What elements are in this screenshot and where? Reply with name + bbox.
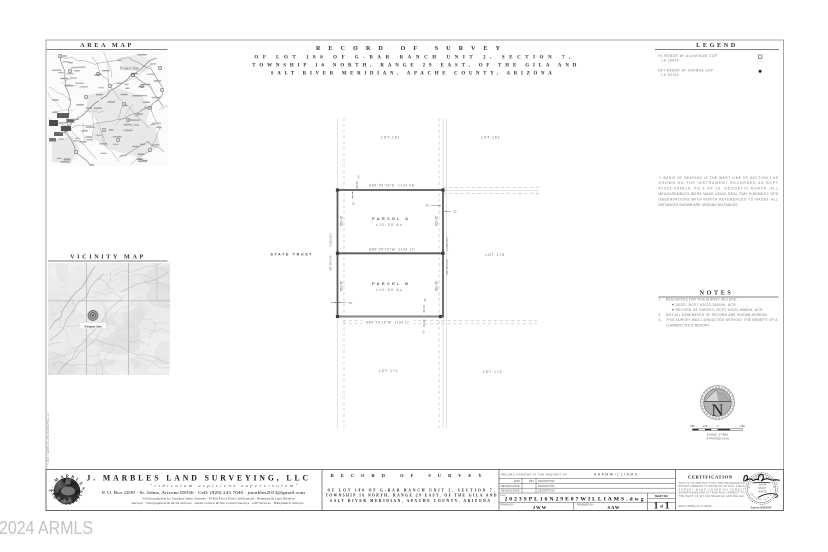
svg-text:LEGEND: LEGEND <box>696 42 738 49</box>
svg-text:RESOURCES FOR THIS SURVEY INCL: RESOURCES FOR THIS SURVEY INCLUDE: <box>666 298 737 302</box>
svg-text:DATE: DATE <box>514 480 521 483</box>
svg-text:LS 19049: LS 19049 <box>662 58 679 62</box>
svg-text:661.46': 661.46' <box>340 215 344 226</box>
svg-text:"ridiculum aspiciens superviso: "ridiculum aspiciens supervisorem" <box>150 483 300 488</box>
svg-text:OBSERVATIONS WITH NORTH REFERE: OBSERVATIONS WITH NORTH REFERENCED TO NA… <box>659 198 779 202</box>
svg-text:LOT 179: LOT 179 <box>486 253 505 257</box>
svg-text:Project Site: Project Site <box>85 324 103 328</box>
svg-text:TOWNSHIP 16 NORTH, RANGE 29 EA: TOWNSHIP 16 NORTH, RANGE 29 EAST, OF THE… <box>326 494 497 498</box>
svg-text:SAW: SAW <box>608 505 621 510</box>
svg-text:60': 60' <box>349 301 353 305</box>
svg-text:661.46': 661.46' <box>435 215 439 226</box>
svg-text:DESCRIPTION: DESCRIPTION <box>538 485 555 488</box>
svg-text:2.: 2. <box>659 313 662 317</box>
svg-text:250: 250 <box>740 424 745 428</box>
svg-text:DEED, RCPT #2023-389156, ACR: DEED, RCPT #2023-389156, ACR <box>676 303 737 307</box>
svg-text:LS 53794: LS 53794 <box>662 73 679 77</box>
svg-text:WHITE: WHITE <box>758 491 766 494</box>
svg-text:SET REBAR W/ ORANGE CAP: SET REBAR W/ ORANGE CAP <box>658 69 713 73</box>
svg-text:CURRENT TITLE REPORT.: CURRENT TITLE REPORT. <box>666 323 710 327</box>
svg-text:DESCRIPTION: DESCRIPTION <box>538 480 555 483</box>
svg-text:Soil Investigation for Standar: Soil Investigation for Standard Septic S… <box>142 496 295 500</box>
svg-text:THIS SURVEY WAS CONDUCTED WITH: THIS SURVEY WAS CONDUCTED WITHOUT THE BE… <box>666 318 778 322</box>
svg-text:VICINITY MAP: VICINITY MAP <box>70 253 146 260</box>
svg-text:N89°26'15"W 1134.11': N89°26'15"W 1134.11' <box>366 320 410 324</box>
svg-text:30': 30' <box>426 204 430 208</box>
svg-text:#2022-558816, PG 4 OF 10. GEOD: #2022-558816, PG 4 OF 10. GEODETIC NORTH… <box>659 187 779 191</box>
svg-text:© 2023 J. MARBLES LAND SURVEYI: © 2023 J. MARBLES LAND SURVEYING, LLC <box>47 413 50 465</box>
svg-text:N: N <box>712 401 724 420</box>
svg-text:SHOWN ON THE INSTRUMENT RECORD: SHOWN ON THE INSTRUMENT RECORDED AS RCPT <box>659 181 779 185</box>
svg-text:1.: 1. <box>659 298 662 302</box>
svg-text:REVISION DATE:: REVISION DATE: <box>501 485 520 488</box>
svg-text:30': 30' <box>423 298 427 302</box>
svg-text:IF PRINTED 24x36: IF PRINTED 24x36 <box>706 436 730 440</box>
svg-text:Project Site: Project Site <box>120 66 139 71</box>
svg-text:125: 125 <box>703 424 708 428</box>
svg-text:DISTANCES SHOWN ARE GROUND DIS: DISTANCES SHOWN ARE GROUND DISTANCES. <box>659 203 739 207</box>
svg-text:N89°26'15"W 1134.10': N89°26'15"W 1134.10' <box>369 247 415 251</box>
svg-text:30': 30' <box>453 209 457 213</box>
svg-text:JWW: JWW <box>533 505 547 510</box>
svg-text:30': 30' <box>357 174 361 178</box>
svg-text:STACY WHITE, R.L.S. 53794: STACY WHITE, R.L.S. 53794 <box>679 505 712 508</box>
svg-text:SHEET NO.: SHEET NO. <box>655 495 669 498</box>
svg-text:Expires 9/30/2024: Expires 9/30/2024 <box>751 507 772 510</box>
svg-text:** BASIS OF BEARING IS THE WES: ** BASIS OF BEARING IS THE WEST LINE OF … <box>659 176 779 180</box>
svg-text:(1383.92'): (1383.92') <box>328 233 332 246</box>
svg-text:N0°38'13"E: N0°38'13"E <box>329 255 333 270</box>
svg-text:DRAWN BY:: DRAWN BY: <box>501 503 515 506</box>
svg-text:REV: REV <box>529 480 534 483</box>
svg-text:30': 30' <box>422 330 426 334</box>
svg-text:RECORD CREATED AT THE REQUEST: RECORD CREATED AT THE REQUEST OF: <box>501 472 568 476</box>
svg-text:LOT 161: LOT 161 <box>381 135 400 139</box>
svg-text:2024 ARMLS: 2024 ARMLS <box>0 517 93 538</box>
svg-text:30': 30' <box>352 201 356 205</box>
svg-text:LOT 162: LOT 162 <box>481 135 500 139</box>
svg-text:(1383.92'): (1383.92') <box>445 237 449 250</box>
svg-text:3.: 3. <box>659 318 662 322</box>
svg-text:THE BEST OF MY KNOWLEDGE AND B: THE BEST OF MY KNOWLEDGE AND BELIEF. <box>679 495 745 498</box>
svg-text:NOT ALL EASEMENTS OF RECORD AR: NOT ALL EASEMENTS OF RECORD ARE SHOWN HE… <box>666 313 768 317</box>
svg-text:LOT 171: LOT 171 <box>379 369 398 373</box>
svg-text:DESCRIPTION: DESCRIPTION <box>538 490 555 493</box>
svg-text:SCALE: 1"=250': SCALE: 1"=250' <box>707 432 729 436</box>
svg-text:A D A M W I L L I A M S: A D A M W I L L I A M S <box>594 473 637 477</box>
svg-text:CERTIFICATION: CERTIFICATION <box>688 475 733 480</box>
svg-text:REVISION DATE:: REVISION DATE: <box>501 490 520 493</box>
svg-text:250: 250 <box>690 424 695 428</box>
svg-text:AREA MAP: AREA MAP <box>80 42 134 49</box>
svg-text:Surveys · Topographical & ALTA: Surveys · Topographical & ALTA Surveys ·… <box>132 501 305 505</box>
svg-text:REVIEWED BY:: REVIEWED BY: <box>577 503 594 506</box>
svg-text:RECORD OF SURVEY, RCPT #2022-5: RECORD OF SURVEY, RCPT #2022-558816, ACR <box>676 308 764 312</box>
svg-text:LOT 172: LOT 172 <box>483 370 502 374</box>
svg-text:Fd REBAR W/ ALUMINUM CAP: Fd REBAR W/ ALUMINUM CAP <box>658 54 717 58</box>
svg-text:N0°38'13"E: N0°38'13"E <box>445 259 449 274</box>
svg-text:NOTES: NOTES <box>700 289 734 296</box>
svg-text:S89°26'16"E 1134.06': S89°26'16"E 1134.06' <box>369 184 415 188</box>
svg-text:661.46': 661.46' <box>340 280 344 291</box>
svg-text:MEASUREMENTS WERE MADE USING R: MEASUREMENTS WERE MADE USING REAL TIME K… <box>659 192 779 196</box>
svg-text:661.46': 661.46' <box>435 280 439 291</box>
svg-text:J. MARBLES LAND SURVEYING, LLC: J. MARBLES LAND SURVEYING, LLC <box>87 473 312 482</box>
